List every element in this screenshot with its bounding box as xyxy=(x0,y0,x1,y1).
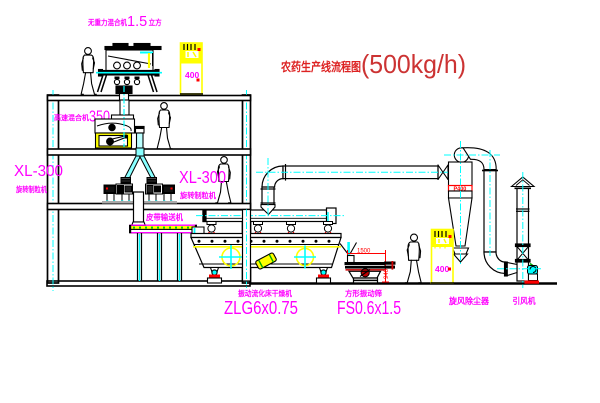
svg-text:(500kg/h): (500kg/h) xyxy=(361,49,466,79)
svg-text:引风机: 引风机 xyxy=(513,296,536,306)
svg-text:FS0.6x1.5: FS0.6x1.5 xyxy=(337,298,401,318)
svg-text:旋风除尘器: 旋风除尘器 xyxy=(448,296,489,306)
svg-text:皮带输送机: 皮带输送机 xyxy=(145,212,183,222)
svg-text:ZLG6x0.75: ZLG6x0.75 xyxy=(224,298,298,318)
svg-text:XL-300: XL-300 xyxy=(179,167,226,187)
svg-text:XL-300: XL-300 xyxy=(14,163,63,180)
svg-text:振动流化床干燥机: 振动流化床干燥机 xyxy=(238,288,292,298)
svg-text:农药生产线流程图: 农药生产线流程图 xyxy=(280,59,361,74)
svg-text:旋转制粒机: 旋转制粒机 xyxy=(15,184,47,194)
svg-text:1500: 1500 xyxy=(357,249,371,255)
svg-text:400: 400 xyxy=(435,264,449,274)
svg-text:旋转制粒机: 旋转制粒机 xyxy=(179,190,216,200)
svg-text:方形振动筛: 方形振动筛 xyxy=(345,288,382,298)
